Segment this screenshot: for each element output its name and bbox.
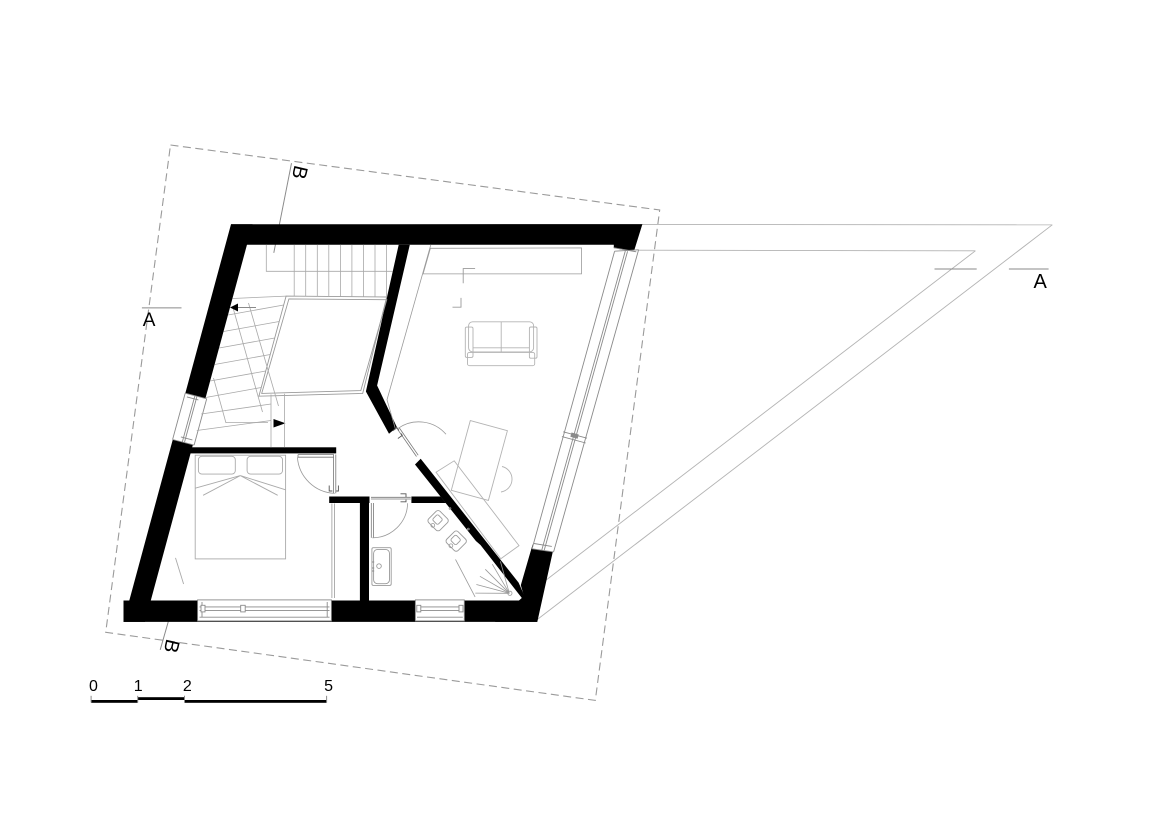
svg-text:A: A bbox=[1034, 271, 1048, 293]
svg-text:1: 1 bbox=[134, 678, 143, 695]
svg-text:A: A bbox=[143, 310, 156, 331]
svg-text:2: 2 bbox=[183, 678, 192, 695]
svg-text:5: 5 bbox=[324, 678, 333, 695]
svg-text:0: 0 bbox=[89, 678, 98, 695]
